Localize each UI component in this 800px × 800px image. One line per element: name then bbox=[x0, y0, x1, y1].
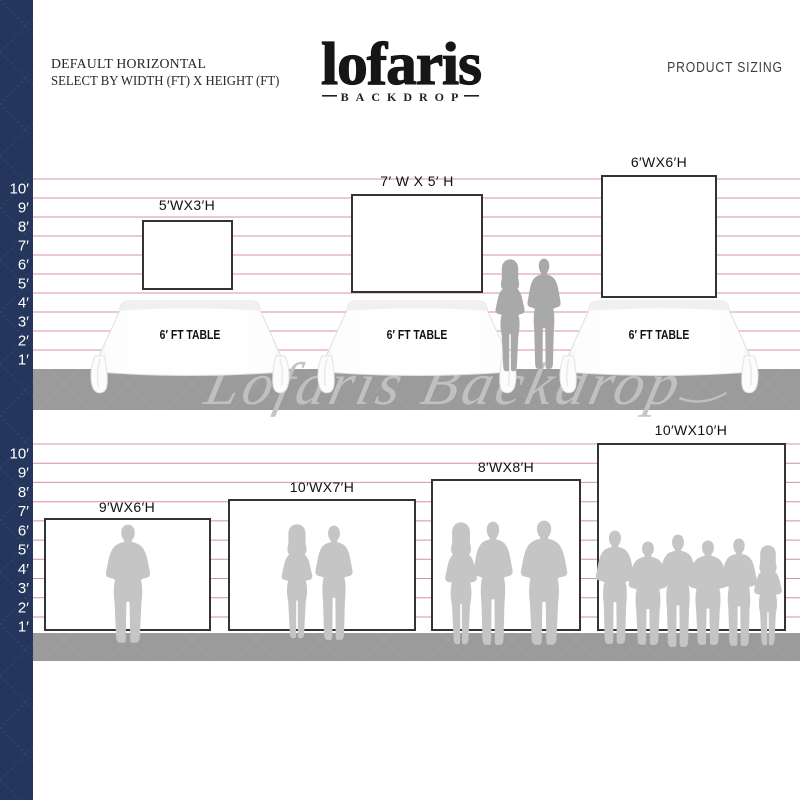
svg-text:9′: 9′ bbox=[18, 465, 29, 482]
svg-text:BACKDROP: BACKDROP bbox=[341, 90, 466, 104]
svg-text:4′: 4′ bbox=[18, 295, 29, 312]
svg-text:5′: 5′ bbox=[18, 542, 29, 559]
svg-text:6′: 6′ bbox=[18, 522, 29, 539]
svg-text:7′: 7′ bbox=[18, 503, 29, 520]
svg-text:7′ W X 5′ H: 7′ W X 5′ H bbox=[380, 173, 453, 189]
svg-text:5′WX3′H: 5′WX3′H bbox=[159, 197, 215, 213]
svg-text:9′WX6′H: 9′WX6′H bbox=[99, 499, 155, 515]
svg-text:2′: 2′ bbox=[18, 333, 29, 350]
svg-text:8′: 8′ bbox=[18, 484, 29, 501]
svg-text:10′WX10′H: 10′WX10′H bbox=[655, 422, 728, 438]
svg-text:5′: 5′ bbox=[18, 276, 29, 293]
svg-text:8′WX8′H: 8′WX8′H bbox=[478, 459, 534, 475]
svg-text:lofaris: lofaris bbox=[321, 32, 481, 98]
svg-text:1′: 1′ bbox=[18, 619, 29, 636]
svg-text:SELECT BY WIDTH (FT) X HEIGHT: SELECT BY WIDTH (FT) X HEIGHT (FT) bbox=[51, 73, 279, 89]
svg-text:10′WX7′H: 10′WX7′H bbox=[290, 479, 354, 495]
svg-text:2′: 2′ bbox=[18, 599, 29, 616]
svg-text:9′: 9′ bbox=[18, 200, 29, 217]
svg-text:10′: 10′ bbox=[10, 181, 30, 198]
svg-text:6′WX6′H: 6′WX6′H bbox=[631, 154, 687, 170]
svg-text:6′: 6′ bbox=[18, 257, 29, 274]
svg-text:DEFAULT HORIZONTAL: DEFAULT HORIZONTAL bbox=[51, 56, 206, 71]
svg-text:3′: 3′ bbox=[18, 314, 29, 331]
svg-text:PRODUCT SIZING: PRODUCT SIZING bbox=[667, 59, 783, 75]
svg-text:3′: 3′ bbox=[18, 580, 29, 597]
svg-text:8′: 8′ bbox=[18, 219, 29, 236]
svg-text:1′: 1′ bbox=[18, 352, 29, 369]
svg-text:10′: 10′ bbox=[10, 446, 30, 463]
svg-text:7′: 7′ bbox=[18, 238, 29, 255]
svg-text:4′: 4′ bbox=[18, 561, 29, 578]
